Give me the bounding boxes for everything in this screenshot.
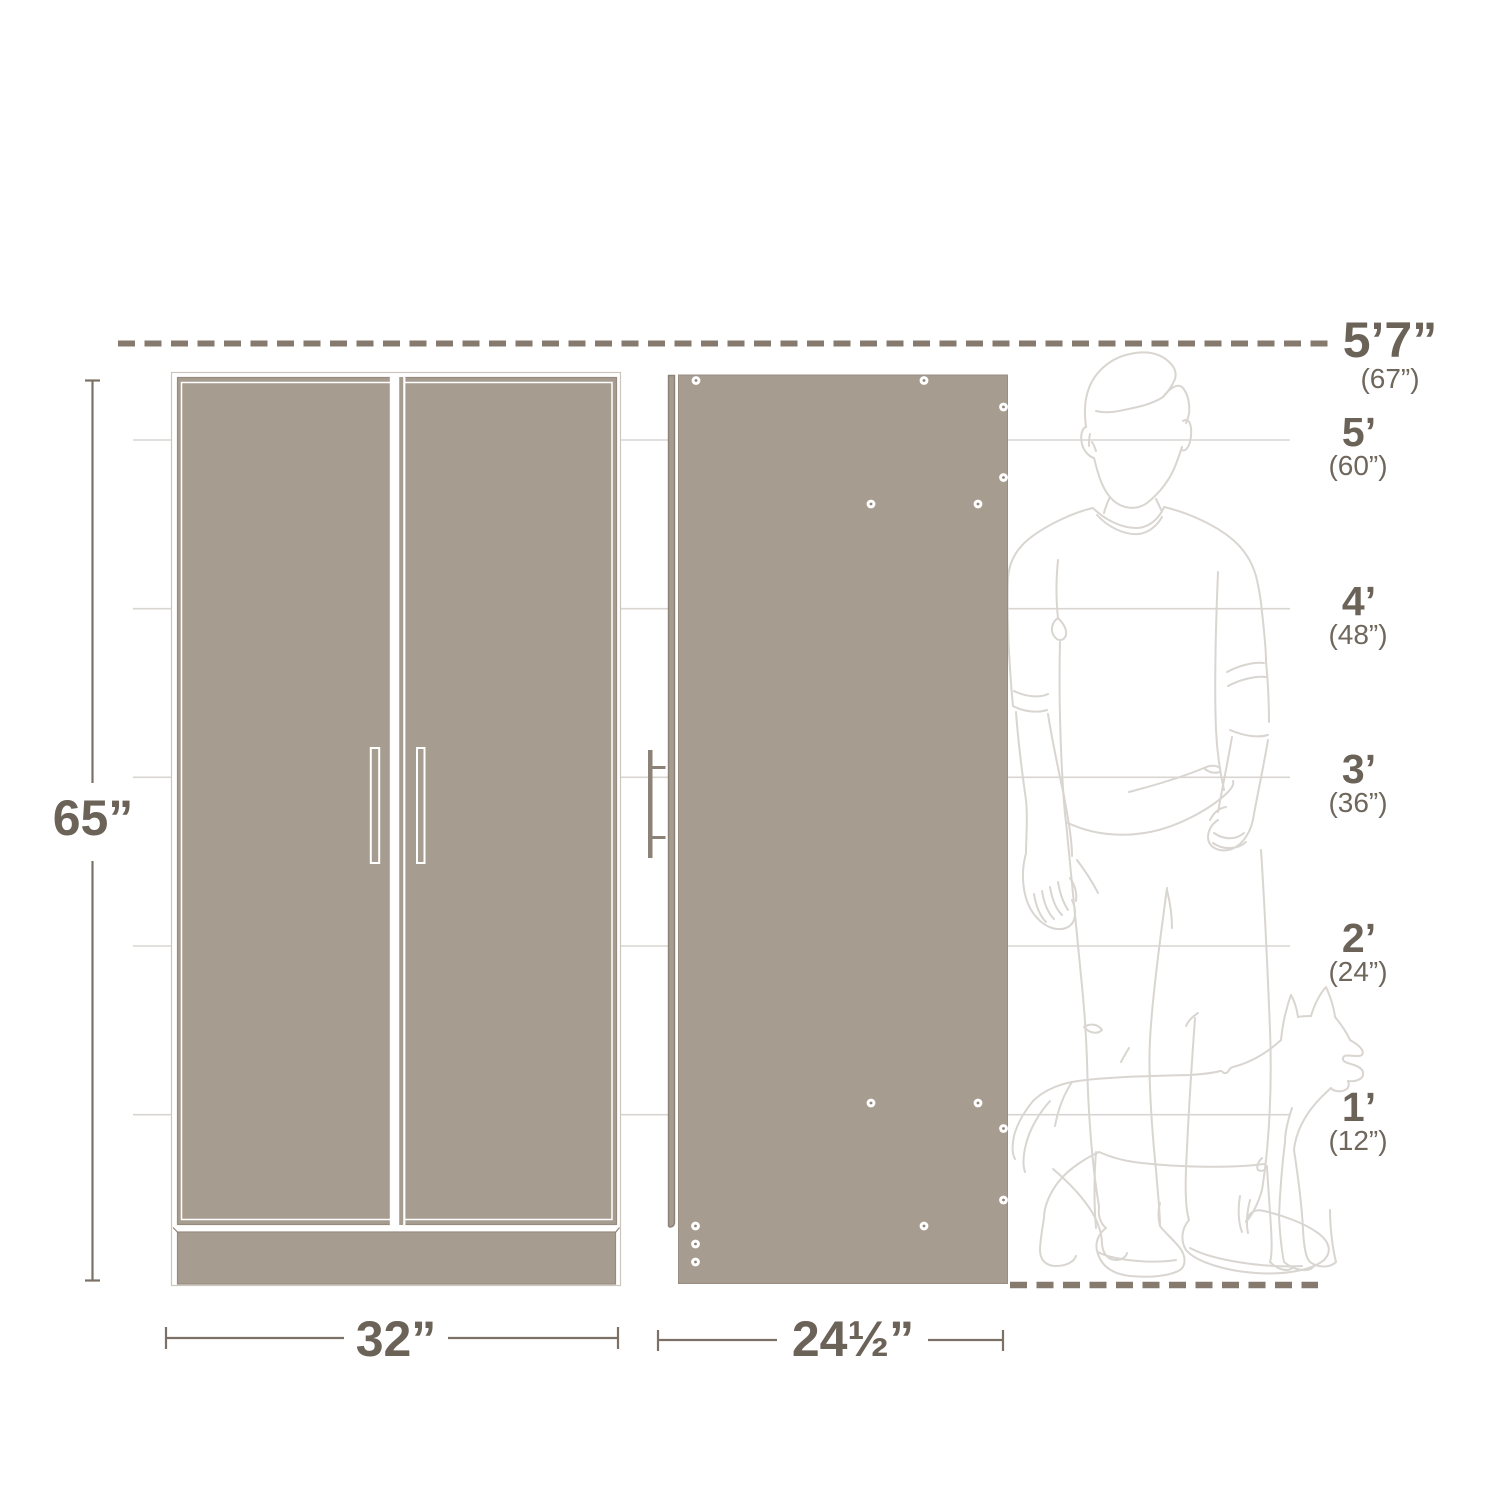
svg-text:1’: 1’	[1342, 1084, 1376, 1130]
svg-text:65”: 65”	[53, 790, 134, 846]
svg-text:(24”): (24”)	[1328, 956, 1387, 987]
svg-text:(12”): (12”)	[1328, 1125, 1387, 1156]
svg-text:32”: 32”	[356, 1311, 437, 1367]
svg-text:5’: 5’	[1342, 409, 1376, 455]
svg-text:3’: 3’	[1342, 746, 1376, 792]
svg-text:(48”): (48”)	[1328, 619, 1387, 650]
svg-text:24½”: 24½”	[792, 1311, 914, 1367]
svg-text:(36”): (36”)	[1328, 787, 1387, 818]
svg-text:(60”): (60”)	[1328, 450, 1387, 481]
svg-text:(67”): (67”)	[1360, 363, 1419, 394]
svg-text:4’: 4’	[1342, 578, 1376, 624]
svg-text:5’7”: 5’7”	[1343, 312, 1438, 368]
svg-text:2’: 2’	[1342, 915, 1376, 961]
